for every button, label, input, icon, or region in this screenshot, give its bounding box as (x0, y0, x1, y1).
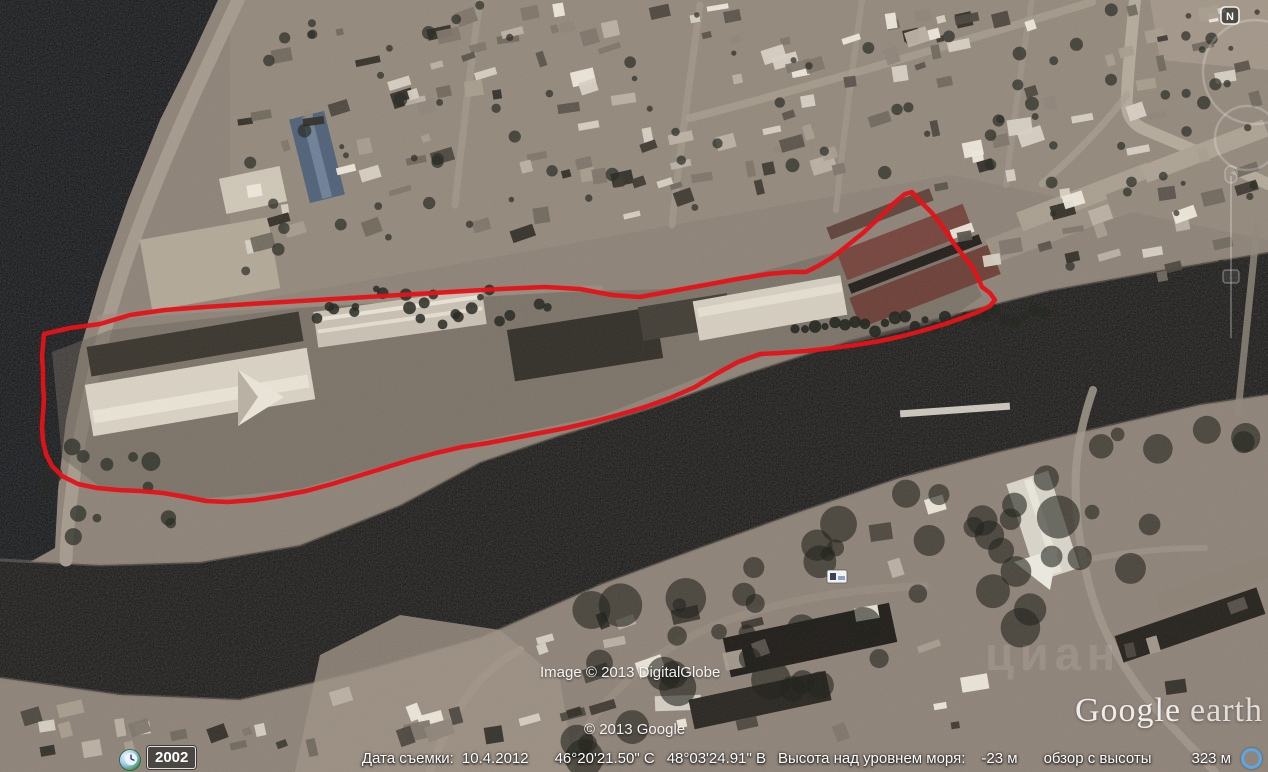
imagery-credit: Image © 2013 DigitalGlobe (540, 664, 720, 681)
status-bar: Дата съемки: 10.4.2012 46°20'21.50" С 48… (362, 748, 1262, 769)
sea-level-label: Высота над уровнем моря: (778, 750, 965, 767)
sea-level-value: -23 м (981, 750, 1017, 767)
eye-altitude-label: обзор с высоты (1044, 750, 1152, 767)
capture-date-value: 10.4.2012 (462, 750, 529, 767)
google-earth-viewport[interactable]: N 2002 Image © 2013 DigitalGlobe © 2013 … (0, 0, 1268, 772)
longitude-value: 48°03'24.91" В (667, 750, 766, 767)
time-slider-year: 2002 (155, 749, 188, 766)
logo-earth: earth (1190, 692, 1263, 729)
capture-date-label: Дата съемки: (362, 750, 454, 767)
google-copyright: © 2013 Google (584, 721, 685, 738)
latitude-value: 46°20'21.50" С (555, 750, 655, 767)
logo-google: Google (1075, 692, 1181, 729)
time-slider-indicator[interactable]: 2002 (147, 746, 196, 769)
streaming-indicator-icon (1241, 748, 1262, 769)
eye-altitude-value: 323 м (1191, 750, 1231, 767)
clock-icon[interactable] (118, 748, 142, 772)
cian-watermark: циан (985, 626, 1121, 681)
google-earth-logo: Googleearth (1075, 692, 1263, 730)
